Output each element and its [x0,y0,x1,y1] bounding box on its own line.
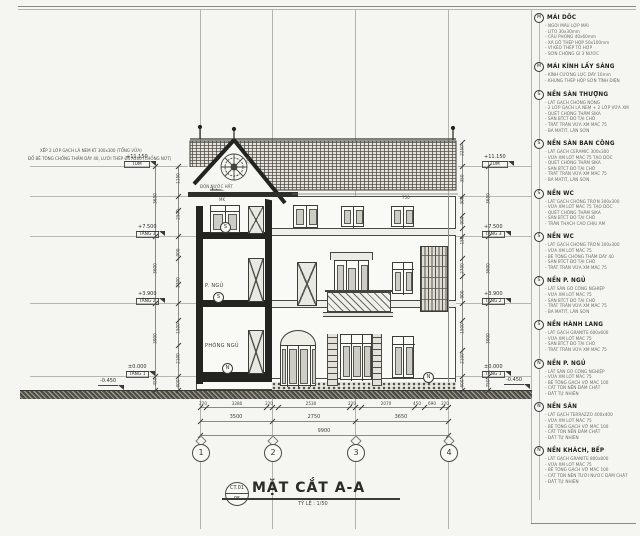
note-spec-lines: - LÁT GẠCH CERAMIC 300x300- VỮA XM LÓT M… [534,149,636,182]
note-marker-icon: M [534,62,544,72]
floor1-window-b [392,336,414,378]
floor-marker-yard: N [423,372,434,383]
eave-band [188,192,298,197]
note-title: NỀN WC [547,191,574,197]
note-title: NỀN P. NGỦ [547,278,586,284]
note-title: NỀN KHÁCH, BẾP [547,448,604,454]
dim-bottom-axis-1: 2750 [304,414,324,420]
drawing-code: CT.01 [226,483,248,494]
note-spec-line: - TRẦN THẠCH CAO CHỊU ẨM [534,221,636,227]
dim-right-fine-3: 900 [460,212,465,230]
section-wall-grid2 [265,196,272,376]
dim-left-fine-5: 2100 [176,350,181,368]
level-line-t3-left [30,236,196,237]
level-label-t2-left: +3.900 TẦNG 2 [136,292,159,305]
level-value: +7.500 [482,225,505,232]
ground-hatch [20,390,532,399]
level-name: TUM [124,162,150,168]
note-item: N NỀN P. NGỦ - LÁT SÀN GỖ CÔNG NGHIỆP- V… [534,359,636,397]
note-spec-line: - TRÁT TRẦN VỮA XM MÁC 75 [534,347,636,353]
grid-bubble-4: 4 [440,444,458,462]
dim-left-main-2: 3900 [153,330,158,348]
level-line-t2-left [30,303,196,304]
dim-bottom-detail-1: 3280 [227,401,247,406]
note-marker-icon: S [534,90,544,100]
note-spec-lines: - LÁT SÀN GỖ CÔNG NGHIỆP- VỮA XM LÓT MÁC… [534,286,636,314]
dim-left-fine-2: 900 [176,244,181,262]
quoin-column-a [327,334,338,386]
floor3-window-b [341,206,364,227]
floor3-window-c [391,206,414,227]
slab-marker-attic: S [220,222,231,233]
level-value: +11.150 [482,155,508,162]
entry-door [280,345,316,386]
floor2-section-door [248,258,264,302]
note-spec-line: - ĐẤT TỰ NHIÊN [534,435,636,441]
dim-chain-bottom-detail [200,407,448,408]
note-title: NỀN P. NGỦ [547,361,586,367]
note-item: S NỀN SÀN THƯỢNG - LÁT GẠCH CHỐNG NÓNG- … [534,90,636,133]
note-title: NỀN HÀNH LANG [547,322,603,328]
grid-line-4-lower [448,461,449,529]
note-spec-line: - 2 LỚP GẠCH LÁ NEM + 2 LỚP VỮA XM [534,105,636,111]
note-marker-icon: S [534,189,544,199]
note-item: M MÁI KÍNH LẤY SÁNG - KÍNH CƯỜNG LỰC DÀY… [534,62,636,83]
balcony-railing [327,292,391,312]
quoin-column-b [372,334,382,386]
level-line-tum-left [30,166,188,167]
note-title: NỀN SÀN THƯỢNG [547,92,608,98]
sidebar-divider [531,9,532,523]
level-label-t3-right: +7.500 TẦNG 3 [482,225,505,238]
floor2-window-pediment [330,252,373,260]
note-marker-icon: N [534,446,544,456]
roof-assembly [188,124,460,206]
dim-right-fine-8: 2100 [460,350,465,368]
attic-door [248,206,264,234]
note-item: S NỀN WC - LÁT GẠCH CHỐNG TRƠN 300x300- … [534,232,636,270]
grid-bubble-3: 3 [347,444,365,462]
dim-bottom-detail-0: 220 [193,401,213,406]
notes-sidebar: M MÁI DỐC - NGÓI MÀU LỢP MÁI- LITO 30x30… [534,13,636,523]
note-spec-line: - TRÁT TRẦN VỮA XM MÁC 75 [534,265,636,271]
level-label-yard-right: -0.450 [504,378,524,385]
dim-chain-bottom-total [200,435,448,436]
level-label-t1-right: ±0.000 TẦNG 1 [482,365,505,378]
dim-right-fine-4: 150 [460,232,465,250]
note-item: S NỀN P. NGỦ - LÁT SÀN GỖ CÔNG NGHIỆP- V… [534,276,636,314]
dim-right-fine-9: 600 [460,375,465,393]
roof-note-1: XẾP 2 LỚP GẠCH LÁ NEM KT 300x300 (TỔNG V… [40,148,142,153]
dim-bottom-detail-2: 220 [259,401,279,406]
dim-left-main-0: 3650 [153,190,158,208]
note-spec-lines: - LÁT GẠCH CHỐNG TRƠN 300x300- VỮA XM LÓ… [534,242,636,270]
note-spec-lines: - NGÓI MÀU LỢP MÁI- LITO 30x30mm- CẦU PH… [534,23,636,56]
dim-right-fine-7: 1500 [460,320,465,338]
note-spec-lines: - LÁT SÀN GỖ CÔNG NGHIỆP- VỮA XM LÓT MÁC… [534,369,636,397]
level-name: TẦNG 2 [136,299,159,305]
dim-left-fine-3: 2700 [176,274,181,292]
dim-right-main-2: 3900 [486,330,491,348]
level-value: -0.450 [98,379,118,386]
room-label-floor1: PHÒNG NGỦ [205,343,239,349]
note-spec-line: - SƠN CHỐNG GỈ 3 NƯỚC [534,51,636,57]
cornice-floor3 [272,228,456,236]
note-marker-icon: S [534,139,544,149]
dim-tick [176,343,182,349]
note-spec-lines: - LÁT GẠCH GRANITE 600x600- VỮA XM LÓT M… [534,330,636,352]
dim-right-fine-0: 2250 [460,142,465,160]
level-name: TẦNG 1 [482,372,505,378]
level-line-eave-right [458,196,531,197]
note-spec-lines: - LÁT GẠCH TERRAZZO 400x400- VỮA XM LÓT … [534,412,636,440]
eave-dim: 750 [402,195,410,200]
dim-left-main-1: 3600 [153,260,158,278]
dim-right-fine-2: 300 [460,192,465,210]
dim-left-fine-1: 2500 [176,206,181,224]
note-item: S NỀN SÀN BAN CÔNG - LÁT GẠCH CERAMIC 30… [534,139,636,182]
dim-bottom-axis-2: 3650 [391,414,411,420]
grid4-wall-line [448,196,449,382]
level-name: TUM [482,162,508,168]
note-item: N NỀN KHÁCH, BẾP - LÁT GẠCH GRANITE 800x… [534,446,636,484]
floor1-window-a [340,334,372,380]
floor3-window-a [293,205,318,228]
rose-window [221,154,247,180]
note-marker-icon: N [534,359,544,369]
note-item: S NỀN HÀNH LANG - LÁT GẠCH GRANITE 600x6… [534,320,636,352]
level-value: -0.450 [504,378,524,385]
note-marker-icon: S [534,276,544,286]
note-marker-icon: S [534,320,544,330]
dim-left-fine-6: 600 [176,375,181,393]
level-line-eave-left [30,196,196,197]
dim-bottom-detail-4: 220 [342,401,362,406]
note-spec-line: - ĐẤT TỰ NHIÊN [534,479,636,485]
note-spec-line: - BẢ MATIT, LĂN SƠN [534,177,636,183]
section-wall-left [196,196,203,384]
grid-line-1-lower [200,461,201,529]
dim-right-main-0: 3650 [486,190,491,208]
note-spec-lines: - KÍNH CƯỜNG LỰC DÀY 10mm- KHUNG THÉP HỘ… [534,72,636,83]
note-item: N NỀN SÂN - LÁT GẠCH TERRAZZO 400x400- V… [534,402,636,440]
dim-bottom-total: 9900 [314,428,334,434]
level-label-t3-left: +7.500 TẦNG 3 [136,225,159,238]
level-name: TẦNG 1 [126,372,149,378]
dim-right-fine-5: 2700 [460,260,465,278]
balcony-slab [323,312,393,317]
level-line-t1-left [30,376,196,377]
dim-right-fine-6: 900 [460,286,465,304]
note-title: NỀN SÂN [547,404,577,410]
level-label-t1-left: ±0.000 TẦNG 1 [126,365,149,378]
sheet-border-top [18,6,636,7]
dim-bottom-axis-0: 3500 [226,414,246,420]
title-underline [222,498,400,500]
mk-label: MK [219,197,225,202]
level-label-yard-left: -0.450 [98,379,118,386]
level-value: ±0.000 [126,365,149,372]
side-roof-skylight [420,246,448,312]
dim-bottom-detail-5: 2070 [376,401,396,406]
note-title: NỀN WC [547,234,574,240]
note-spec-line: - BẢ MATIT, LĂN SƠN [534,128,636,134]
level-label-t2-right: +3.900 TẦNG 2 [482,292,505,305]
dim-bottom-detail-3: 2530 [301,401,321,406]
note-spec-line: - KHUNG THÉP HỘP SƠN TĨNH ĐIỆN [534,78,636,84]
level-label-tum-left: +11.150 TUM [124,155,150,168]
note-title: NỀN SÀN BAN CÔNG [547,141,615,147]
slab-marker-floor2: S [213,292,224,303]
floor1-section-door [248,330,264,374]
roof-finials [199,126,455,141]
note-item: S NỀN WC - LÁT GẠCH CHỐNG TRƠN 300x300- … [534,189,636,227]
note-spec-line: - ĐẤT TỰ NHIÊN [534,391,636,397]
level-name: TẦNG 3 [482,232,505,238]
grid-bubble-2: 2 [264,444,282,462]
note-marker-icon: S [534,232,544,242]
room-label-floor2: P. NGỦ [205,283,224,289]
level-name: TẦNG 3 [136,232,159,238]
drawing-scale: TỶ LỆ : 1/50 [298,501,328,507]
level-name: TẦNG 2 [482,299,505,305]
dim-chain-bottom-axis [200,421,448,422]
note-marker-icon: N [534,402,544,412]
sheet-border-top-inner [18,9,636,10]
dim-left-fine-0: 1150 [176,170,181,188]
note-spec-lines: - LÁT GẠCH CHỐNG NÓNG- 2 LỚP GẠCH LÁ NEM… [534,100,636,133]
dim-bottom-detail-8: 220 [435,401,455,406]
level-value: +3.900 [482,292,505,299]
drip-edge-label: ĐÓN NƯỚC HẮT [200,184,233,189]
dim-left-fine-4: 1500 [176,320,181,338]
note-marker-icon: M [534,13,544,23]
note-title: MÁI DỐC [547,15,576,21]
floor2-window-right [392,262,413,294]
note-spec-line: - BẢ MATIT, LĂN SƠN [534,309,636,315]
floor-marker-floor1: N [222,363,233,374]
note-spec-line: - CÁT TÔN NỀN TƯỚI NƯỚC ĐẦM CHẶT [534,473,636,479]
note-spec-lines: - LÁT GẠCH CHỐNG TRƠN 300x300- VỮA XM LÓ… [534,199,636,227]
dim-right-fine-1: 350 [460,170,465,188]
grid-bubble-1: 1 [192,444,210,462]
floor2-door-window [297,262,317,306]
note-title: MÁI KÍNH LẤY SÁNG [547,64,615,70]
level-label-tum-right: +11.150 TUM [482,155,508,168]
note-spec-lines: - LÁT GẠCH GRANITE 800x800- VỮA XM LÓT M… [534,456,636,484]
level-value: +3.900 [136,292,159,299]
level-value: +11.150 [124,155,150,162]
note-item: M MÁI DỐC - NGÓI MÀU LỢP MÁI- LITO 30x30… [534,13,636,56]
level-value: ±0.000 [482,365,505,372]
sidebar-bottom-line [531,523,636,524]
dim-right-main-1: 3600 [486,260,491,278]
level-value: +7.500 [136,225,159,232]
drawing-title: MẶT CẮT A-A [252,480,365,496]
rose-dim: 750 [245,157,250,165]
drawing-sheet: { "sheet": { "title": "MẶT CẮT A-A", "sc… [0,0,640,536]
title-symbol: CT.01 05 [225,482,249,506]
